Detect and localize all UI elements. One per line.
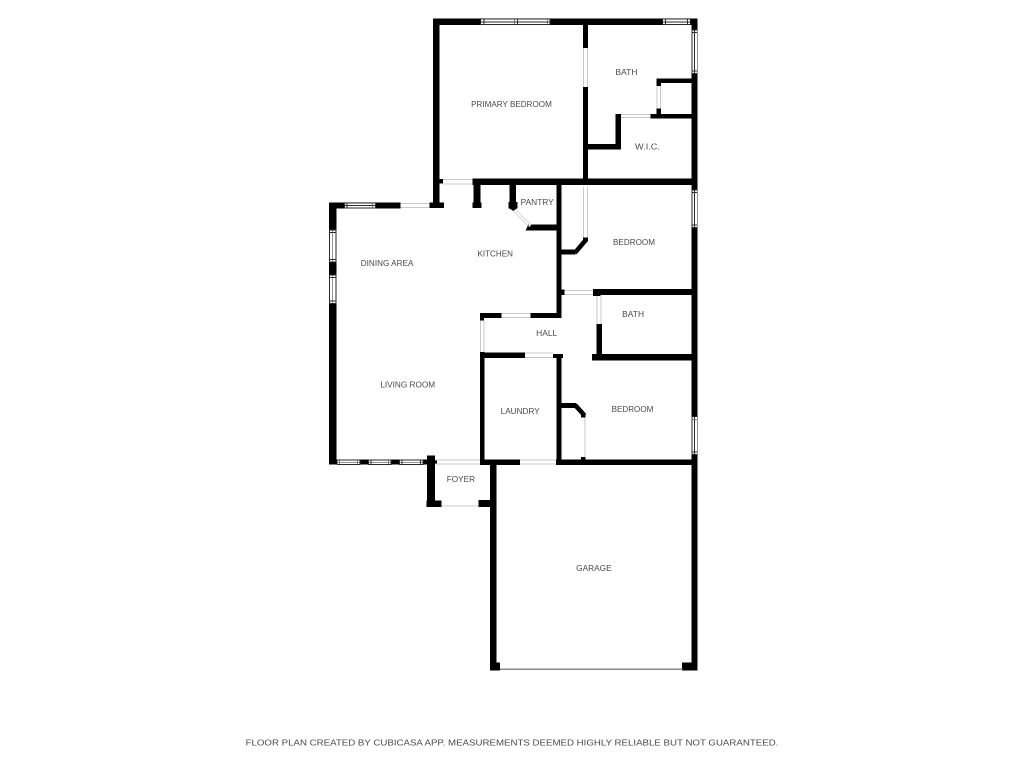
svg-text:BEDROOM: BEDROOM <box>613 237 655 247</box>
svg-text:BATH: BATH <box>622 309 644 319</box>
svg-text:W.I.C.: W.I.C. <box>635 141 660 151</box>
svg-text:FLOOR PLAN CREATED BY CUBICASA: FLOOR PLAN CREATED BY CUBICASA APP. MEAS… <box>246 738 779 748</box>
svg-text:LIVING ROOM: LIVING ROOM <box>380 380 435 390</box>
svg-text:BEDROOM: BEDROOM <box>612 404 654 414</box>
svg-text:BATH: BATH <box>616 67 638 77</box>
svg-text:FOYER: FOYER <box>447 474 475 484</box>
svg-text:HALL: HALL <box>536 328 557 338</box>
svg-text:LAUNDRY: LAUNDRY <box>501 406 541 416</box>
svg-text:PRIMARY BEDROOM: PRIMARY BEDROOM <box>471 99 552 109</box>
svg-text:DINING AREA: DINING AREA <box>361 258 414 268</box>
svg-text:KITCHEN: KITCHEN <box>478 249 513 259</box>
svg-text:PANTRY: PANTRY <box>521 197 555 207</box>
svg-text:GARAGE: GARAGE <box>576 563 612 573</box>
